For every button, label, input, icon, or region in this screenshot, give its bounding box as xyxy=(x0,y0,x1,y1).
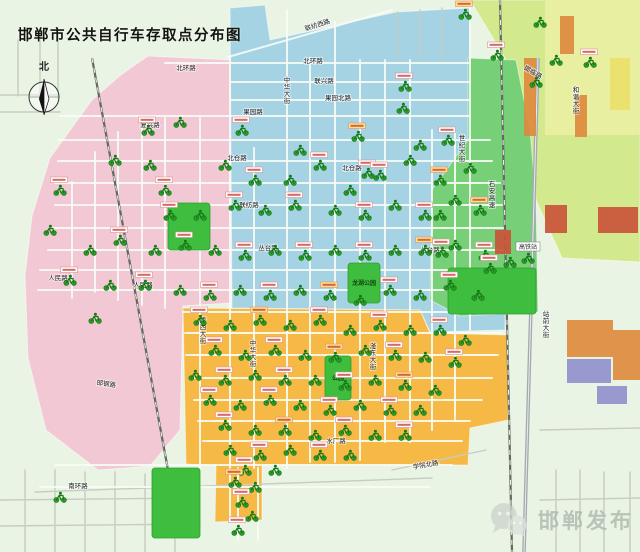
street-label: 中华大街 xyxy=(250,338,257,368)
station-label-text-mark xyxy=(328,346,341,348)
station-label-text-mark xyxy=(398,75,411,77)
street-label: 北仓路 xyxy=(227,153,247,162)
map-title: 邯郸市公共自行车存取点分布图 xyxy=(18,24,318,45)
street-label: 中华大街 xyxy=(284,75,291,105)
street-label: 果园路 xyxy=(243,107,263,116)
station-label-text-mark xyxy=(238,244,251,246)
station-label-text-mark xyxy=(298,244,311,246)
station-label-text-mark xyxy=(358,244,371,246)
station-label-text-mark xyxy=(433,319,446,321)
street-label: 南环路 xyxy=(68,481,88,490)
bike-station-icon[interactable] xyxy=(229,517,246,535)
station-label-text-mark xyxy=(383,279,396,281)
poi-layer: 高铁站 xyxy=(516,242,540,251)
park-east-green xyxy=(448,268,536,314)
station-label-text-mark xyxy=(373,164,386,166)
street-label: 石安高速 xyxy=(489,180,496,209)
station-label-text-mark xyxy=(418,239,431,241)
station-label-text-mark xyxy=(113,229,126,231)
map-stage: 龙湖公园公园北环路北环路联兴路果园北路果园路复兴路北仓路北仓路联纺路丛台路丛台路… xyxy=(0,0,640,552)
station-label-text-mark xyxy=(338,419,351,421)
station-label-text-mark xyxy=(313,444,326,446)
station-label-text-mark xyxy=(313,154,326,156)
station-label-text-mark xyxy=(228,471,241,473)
station-label-text-mark xyxy=(53,179,66,181)
street-label: 水厂路 xyxy=(326,436,346,445)
poi-label: 高铁站 xyxy=(519,243,537,251)
station-label-text-mark xyxy=(398,374,411,376)
station-label-text-mark xyxy=(263,389,276,391)
park-south-park xyxy=(152,468,200,538)
station-label-text-mark xyxy=(278,419,291,421)
park-label: 龙湖公园 xyxy=(352,279,376,287)
station-label-text-mark xyxy=(235,491,248,493)
station-label-text-mark xyxy=(231,519,244,521)
station-label-text-mark xyxy=(388,344,401,346)
street-label: 北环路 xyxy=(176,63,196,72)
station-label-text-mark xyxy=(323,399,336,401)
map-canvas: 龙湖公园公园北环路北环路联兴路果园北路果园路复兴路北仓路北仓路联纺路丛台路丛台路… xyxy=(0,0,640,552)
station-label-text-mark xyxy=(583,51,596,53)
building-block xyxy=(597,386,627,404)
bike-station-icon[interactable] xyxy=(54,492,66,503)
building-block xyxy=(495,230,511,254)
street-label: 联纺路 xyxy=(239,200,259,209)
station-label-text-mark xyxy=(448,351,461,353)
station-label-text-mark xyxy=(398,424,411,426)
street-label: 站前大街 xyxy=(543,309,550,339)
street-label: 世纪大街 xyxy=(459,133,466,163)
station-label-text-mark xyxy=(323,284,336,286)
street-label: 滏东大街 xyxy=(370,341,377,371)
station-label-text-mark xyxy=(351,125,364,127)
station-label-text-mark xyxy=(441,129,454,131)
station-label-text-mark xyxy=(253,444,266,446)
station-label-text-mark xyxy=(418,204,431,206)
street-label: 果园北路 xyxy=(325,93,352,102)
station-label-text-mark xyxy=(253,309,266,311)
building-block xyxy=(567,359,611,383)
station-label-text-mark xyxy=(235,119,248,121)
building-block xyxy=(545,205,567,233)
station-label-text-mark xyxy=(218,414,231,416)
station-label-text-mark xyxy=(458,3,471,5)
bike-station-icon[interactable] xyxy=(269,465,281,476)
compass-rose-icon xyxy=(24,73,64,121)
station-label-text-mark xyxy=(268,339,281,341)
station-label-text-mark xyxy=(178,234,191,236)
station-label-text-mark xyxy=(478,244,491,246)
compass-north-label: 北 xyxy=(24,58,64,73)
street-label: 北环路 xyxy=(303,56,323,65)
street-label: 联兴路 xyxy=(314,76,334,85)
compass: 北 xyxy=(24,58,64,120)
station-label-text-mark xyxy=(288,194,301,196)
watermark: 邯郸发布 xyxy=(488,496,638,544)
road-outer xyxy=(540,428,640,430)
station-label-text-mark xyxy=(433,169,446,171)
building-block xyxy=(598,207,638,233)
station-label-text-mark xyxy=(208,339,221,341)
building-block xyxy=(560,16,574,54)
station-label-text-mark xyxy=(238,459,251,461)
station-label-text-mark xyxy=(338,374,351,376)
station-label-text-mark xyxy=(228,194,241,196)
station-label-text-mark xyxy=(278,369,291,371)
station-label-text-mark xyxy=(473,199,486,201)
park-congtai-park xyxy=(168,203,210,250)
station-label-text-mark xyxy=(483,257,496,259)
station-label-text-mark xyxy=(373,314,386,316)
street-label: 和谐大街 xyxy=(573,85,580,115)
station-label-text-mark xyxy=(490,44,503,46)
station-label-text-mark xyxy=(435,241,448,243)
station-label-text-mark xyxy=(138,274,151,276)
station-label-text-mark xyxy=(443,274,456,276)
station-label-text-mark xyxy=(358,204,371,206)
station-label-text-mark xyxy=(158,179,171,181)
building-block xyxy=(613,330,640,380)
watermark-text: 邯郸发布 xyxy=(538,505,634,535)
station-label-text-mark xyxy=(218,369,231,371)
wechat-icon xyxy=(488,500,530,540)
station-label-text-mark xyxy=(163,204,176,206)
building-block xyxy=(567,320,613,357)
station-label-text-mark xyxy=(263,284,276,286)
building-block xyxy=(610,58,630,110)
station-label-text-mark xyxy=(203,389,216,391)
station-label-text-mark xyxy=(248,169,261,171)
station-label-text-mark xyxy=(193,309,206,311)
station-label-text-mark xyxy=(313,309,326,311)
station-label-text-mark xyxy=(383,399,396,401)
station-label-text-mark xyxy=(141,119,154,121)
station-label-text-mark xyxy=(63,269,76,271)
station-label-text-mark xyxy=(203,284,216,286)
